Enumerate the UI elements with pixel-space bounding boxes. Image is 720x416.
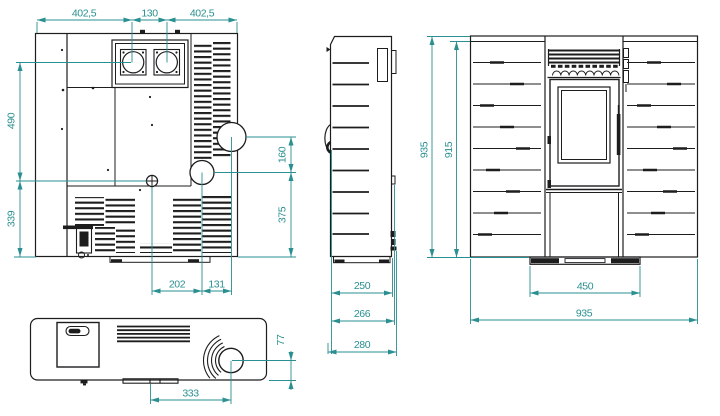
rear-dimensions [14, 20, 296, 295]
dim-label-rear-right-lower: 375 [277, 206, 289, 223]
fire-door [546, 80, 622, 258]
vent-louvers-lower-left [63, 197, 172, 253]
side-panel-ribs [333, 63, 370, 234]
dim-label-rear-bottom-outer: 131 [208, 279, 225, 291]
cable-gland [146, 175, 157, 186]
curved-panel-arcs [203, 336, 224, 379]
top-dimensions [151, 351, 297, 404]
side-vent-slot [378, 49, 388, 82]
rear-view [36, 30, 247, 263]
air-grille [548, 49, 621, 78]
dim-label-rear-left-lower: 339 [6, 210, 18, 227]
stove-dimension-drawing: 402,5 130 402,5 490 339 160 375 202 131 [0, 0, 720, 416]
dim-label-rear-bottom-inner: 202 [169, 279, 186, 291]
technical-drawing-canvas: 402,5 130 402,5 490 339 160 375 202 131 [0, 0, 720, 416]
side-dimensions [328, 150, 397, 356]
dim-label-rear-top-left: 402,5 [72, 8, 97, 20]
dim-label-rear-right-upper: 160 [277, 146, 289, 163]
dim-label-side-body-depth: 250 [354, 280, 371, 292]
door-handle-profile [325, 125, 331, 153]
door-glass [558, 87, 610, 163]
dim-label-side-total-depth: 280 [354, 339, 371, 351]
dim-label-front-total-height: 935 [419, 141, 431, 158]
side-base [334, 257, 391, 263]
side-view [325, 37, 397, 263]
front-view [471, 36, 698, 264]
hopper-lid [57, 323, 99, 368]
dim-label-top-flue-offset-y: 77 [275, 334, 287, 345]
power-inlet-panel [77, 228, 92, 259]
dim-label-front-total-width: 935 [576, 308, 593, 320]
dim-label-front-side-height: 915 [443, 141, 455, 158]
dim-label-rear-top-center: 130 [141, 8, 158, 20]
front-side-panel-seams [473, 63, 695, 235]
dim-label-top-flue-offset-x: 333 [182, 388, 199, 400]
door-hinge-column [624, 49, 629, 93]
dim-label-rear-left-upper: 490 [6, 112, 18, 129]
dim-label-front-base-width: 450 [577, 281, 594, 293]
top-grille [117, 327, 190, 342]
rear-base [110, 257, 210, 263]
screw-dots [61, 49, 153, 191]
pedestal-base [530, 257, 640, 264]
front-body-outline [471, 36, 698, 257]
door-handle [617, 114, 621, 155]
fan-housing [112, 40, 188, 88]
dim-label-rear-top-right: 402,5 [190, 8, 215, 20]
dim-label-side-mid-depth: 266 [354, 308, 371, 320]
side-body-outline [331, 37, 392, 257]
